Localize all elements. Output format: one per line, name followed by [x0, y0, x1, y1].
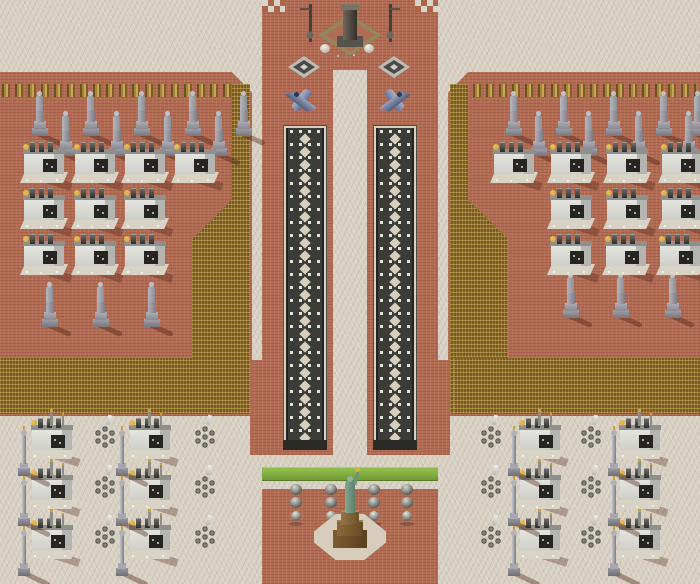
tech-building[interactable]	[121, 232, 171, 278]
spire-building[interactable]	[28, 416, 78, 462]
obelisk-statue[interactable]	[506, 476, 522, 528]
barrel-cluster[interactable]	[92, 424, 118, 450]
corridor-bridge-left	[250, 360, 262, 455]
tech-building[interactable]	[656, 232, 700, 278]
spire-building[interactable]	[126, 416, 176, 462]
plaza-checker-right	[415, 0, 438, 12]
statue-prop[interactable]	[79, 90, 103, 138]
tech-building[interactable]	[171, 140, 221, 186]
statue-prop[interactable]	[609, 272, 633, 320]
gold-band-right-bottom	[454, 358, 700, 414]
corridor-bridge-right	[438, 360, 450, 455]
statue-prop[interactable]	[130, 90, 154, 138]
statue-prop[interactable]	[602, 90, 626, 138]
statue-prop[interactable]	[38, 281, 62, 329]
obelisk-statue[interactable]	[606, 426, 622, 478]
fighter-jet-right[interactable]	[378, 86, 412, 116]
tech-building[interactable]	[602, 232, 652, 278]
railroad-track	[376, 128, 414, 447]
barrel-cluster[interactable]	[578, 474, 604, 500]
tech-building[interactable]	[547, 140, 597, 186]
statue-prop[interactable]	[559, 272, 583, 320]
tech-building[interactable]	[658, 140, 700, 186]
tech-building[interactable]	[603, 186, 653, 232]
tech-building[interactable]	[547, 186, 597, 232]
tech-building[interactable]	[547, 232, 597, 278]
statue-prop[interactable]	[502, 90, 526, 138]
spire-building[interactable]	[616, 466, 666, 512]
tech-building[interactable]	[121, 140, 171, 186]
tech-building[interactable]	[20, 186, 70, 232]
tech-building[interactable]	[71, 232, 121, 278]
tech-building[interactable]	[658, 186, 700, 232]
obelisk-statue[interactable]	[606, 476, 622, 528]
spire-building[interactable]	[616, 516, 666, 562]
tech-building[interactable]	[20, 140, 70, 186]
fighter-jet-left[interactable]	[284, 86, 318, 116]
statue-prop[interactable]	[89, 281, 113, 329]
statue-prop[interactable]	[232, 90, 256, 138]
tech-building[interactable]	[20, 232, 70, 278]
statue-prop[interactable]	[28, 90, 52, 138]
tech-building[interactable]	[71, 186, 121, 232]
spire-building[interactable]	[616, 416, 666, 462]
spire-building[interactable]	[516, 516, 566, 562]
statue-prop[interactable]	[652, 90, 676, 138]
spire-building[interactable]	[516, 416, 566, 462]
gold-band-left-bottom	[0, 358, 246, 414]
obelisk-statue[interactable]	[16, 426, 32, 478]
tech-building[interactable]	[490, 140, 540, 186]
barrel-cluster[interactable]	[192, 474, 218, 500]
game-map[interactable]	[0, 0, 700, 584]
obelisk-statue[interactable]	[506, 526, 522, 578]
obelisk-statue[interactable]	[16, 526, 32, 578]
unit-group[interactable]	[288, 484, 304, 530]
tech-building[interactable]	[71, 140, 121, 186]
barrel-cluster[interactable]	[192, 524, 218, 550]
spire-building[interactable]	[126, 516, 176, 562]
monument-compound[interactable]	[296, 2, 404, 64]
statue-prop[interactable]	[552, 90, 576, 138]
barrel-cluster[interactable]	[192, 424, 218, 450]
obelisk-statue[interactable]	[16, 476, 32, 528]
statue-prop[interactable]	[181, 90, 205, 138]
statue-prop[interactable]	[661, 272, 685, 320]
tech-building[interactable]	[121, 186, 171, 232]
track-cap-right	[373, 440, 417, 450]
obelisk-statue[interactable]	[606, 526, 622, 578]
spire-building[interactable]	[126, 466, 176, 512]
tech-building[interactable]	[603, 140, 653, 186]
barrel-cluster[interactable]	[578, 424, 604, 450]
barrel-cluster[interactable]	[578, 524, 604, 550]
statue-prop[interactable]	[140, 281, 164, 329]
barrel-cluster[interactable]	[92, 474, 118, 500]
barrel-cluster[interactable]	[478, 474, 504, 500]
barrel-cluster[interactable]	[478, 424, 504, 450]
obelisk-statue[interactable]	[506, 426, 522, 478]
spire-building[interactable]	[516, 466, 566, 512]
railroad-track	[286, 128, 324, 447]
unit-group[interactable]	[399, 484, 415, 530]
track-cap-left	[283, 440, 327, 450]
plaza-checker-left	[262, 0, 285, 12]
barrel-cluster[interactable]	[92, 524, 118, 550]
spire-building[interactable]	[28, 516, 78, 562]
barrel-cluster[interactable]	[478, 524, 504, 550]
spire-building[interactable]	[28, 466, 78, 512]
statue-of-liberty[interactable]	[314, 466, 386, 560]
center-median	[333, 70, 367, 455]
